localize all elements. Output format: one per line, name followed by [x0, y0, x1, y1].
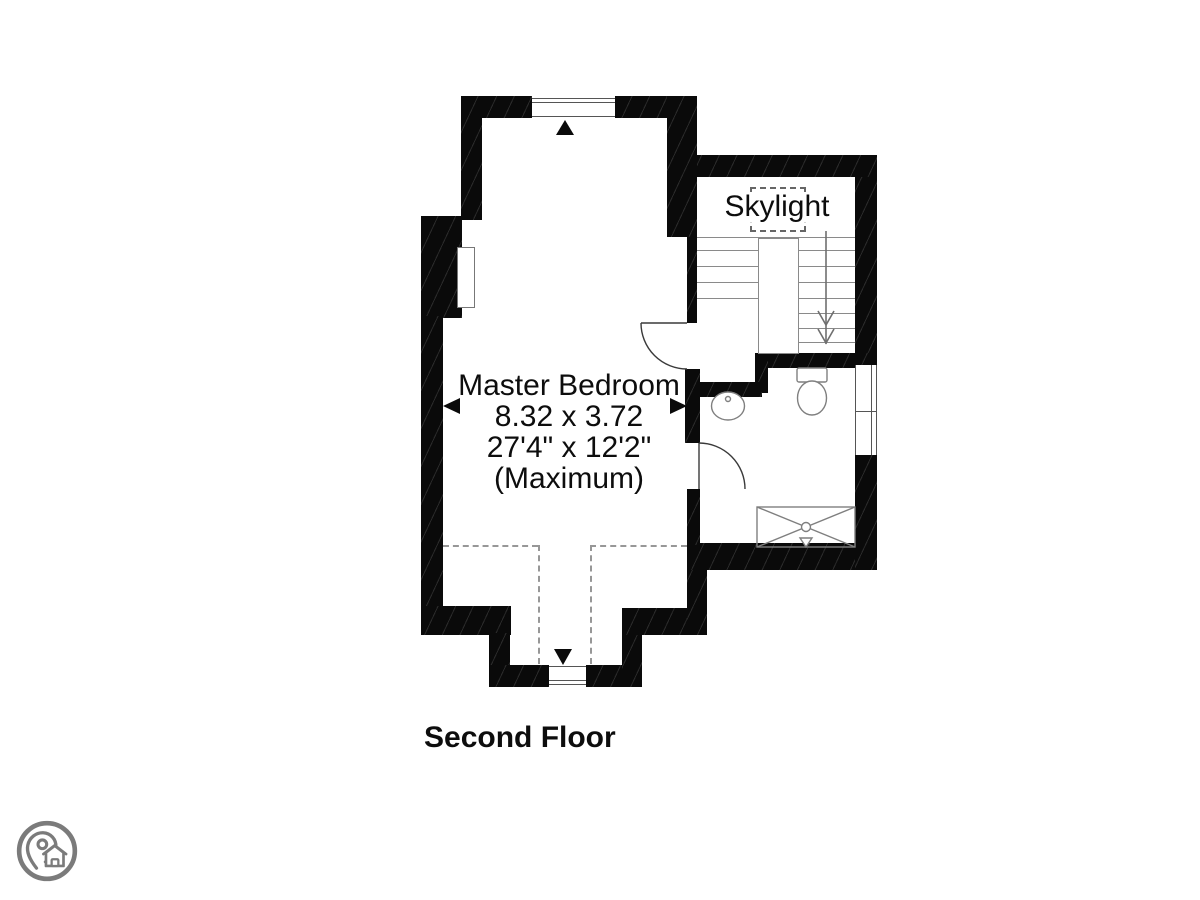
stair-down-arrow-icon [818, 231, 834, 344]
room-size-qualifier: (Maximum) [419, 463, 719, 494]
floor-title: Second Floor [424, 721, 616, 755]
room-label-master-bedroom: Master Bedroom 8.32 x 3.72 27'4" x 12'2"… [419, 370, 719, 494]
door-bedroom [641, 323, 687, 369]
toilet-icon [797, 368, 827, 415]
map-pin-home-logo-icon [14, 818, 80, 884]
room-name: Master Bedroom [419, 370, 719, 401]
room-size-metric: 8.32 x 3.72 [419, 401, 719, 432]
shower-icon [757, 507, 855, 547]
floor-plan: Skylight [0, 0, 1200, 900]
room-size-imperial: 27'4" x 12'2" [419, 432, 719, 463]
